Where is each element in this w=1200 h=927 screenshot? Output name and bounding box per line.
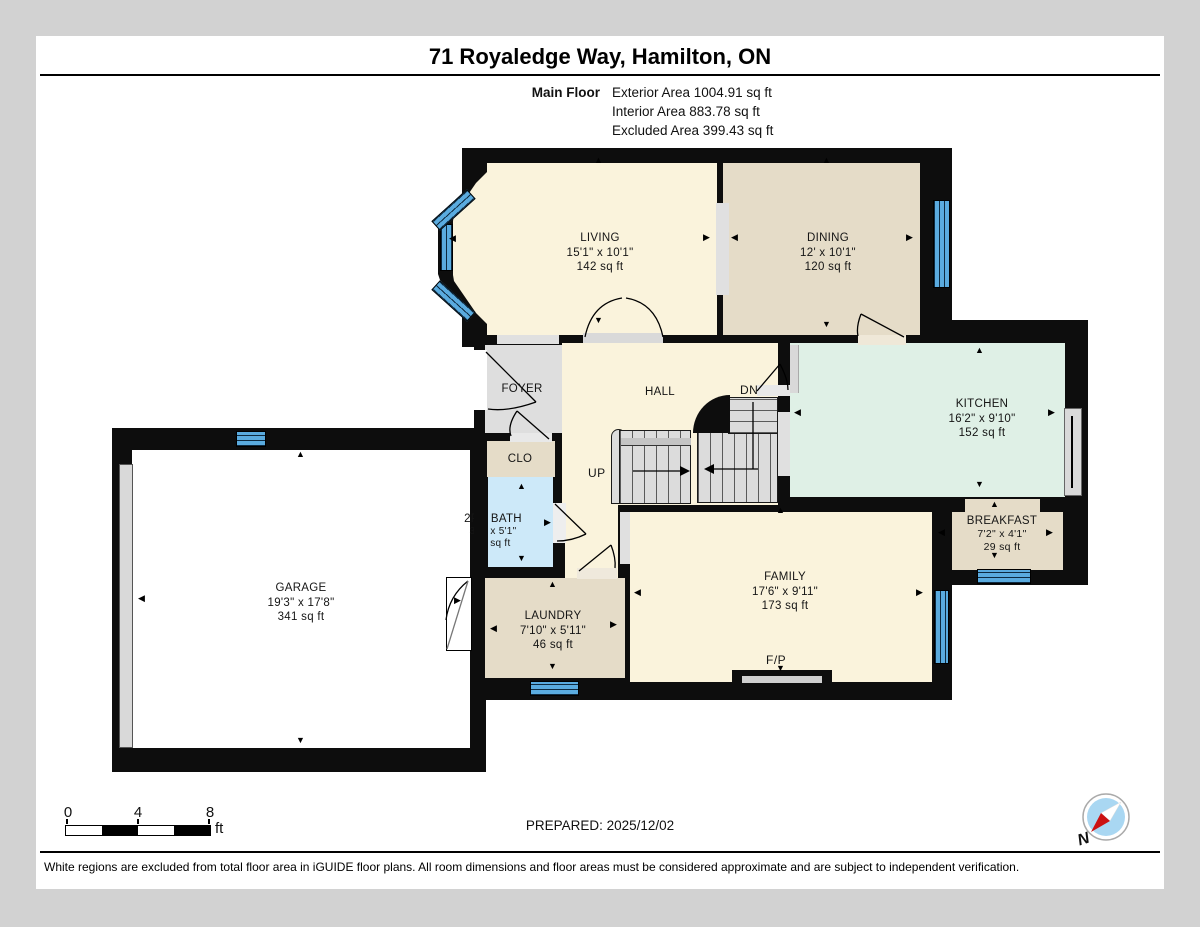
dimension-arrow: ◀ [794, 408, 801, 417]
dimension-arrow: ▶ [916, 588, 923, 597]
dimension-arrow: ▶ [544, 518, 551, 527]
label-kitchen: KITCHEN 16'2" x 9'10" 152 sq ft [902, 397, 1062, 441]
sill-living-doors [583, 333, 663, 343]
fireplace-insert [742, 676, 822, 683]
opening-foyer-living [497, 335, 559, 344]
scale-tickmark [66, 819, 68, 824]
dimension-arrow: ◀ [938, 528, 945, 537]
opening-hall-family [620, 512, 630, 564]
dimension-arrow: ▼ [990, 551, 999, 560]
gap-laundry-door [577, 568, 617, 579]
stair-handrail [621, 438, 691, 446]
garage-window [236, 431, 266, 447]
stairs-down-lower [697, 432, 778, 503]
label-closet: CLO [485, 452, 555, 467]
dimension-arrow: ▶ [610, 620, 617, 629]
label-dining: DINING 12' x 10'1" 120 sq ft [748, 231, 908, 275]
scale-tickmark [208, 819, 210, 824]
dimension-arrow: ▲ [776, 506, 785, 515]
dimension-arrow: ▼ [776, 664, 785, 673]
label-bath: 2PC BATH 3'6" x 5'1" 18 sq ft [447, 513, 539, 551]
label-laundry: LAUNDRY 7'10" x 5'11" 46 sq ft [480, 609, 626, 653]
wall [474, 477, 488, 567]
label-hall: HALL [610, 385, 710, 400]
stairs-down-upper [728, 397, 778, 434]
kitchen-counter [790, 345, 799, 393]
dimension-arrow: ▼ [548, 662, 557, 671]
dimension-arrow: ▲ [517, 482, 526, 491]
sliding-patio-door [1064, 408, 1082, 496]
scale-segment [66, 826, 102, 835]
dimension-arrow: ▶ [906, 233, 913, 242]
floorplan-canvas: 71 Royaledge Way, Hamilton, ON Main Floo… [0, 0, 1200, 927]
dimension-arrow: ▼ [296, 736, 305, 745]
scale-tick-8: 8 [200, 804, 220, 821]
floor-plan: LIVING 15'1" x 10'1" 142 sq ft DINING 12… [0, 0, 1200, 927]
label-foyer: FOYER [482, 382, 562, 397]
garage-entry-door-box [446, 577, 472, 651]
dimension-arrow: ▶ [1046, 528, 1053, 537]
label-living: LIVING 15'1" x 10'1" 142 sq ft [520, 231, 680, 275]
laundry-window [530, 681, 579, 696]
dimension-arrow: ◀ [490, 624, 497, 633]
dimension-arrow: ▶ [1048, 408, 1055, 417]
disclaimer-text: White regions are excluded from total fl… [44, 860, 1156, 874]
label-garage: GARAGE 19'3" x 17'8" 341 sq ft [221, 581, 381, 625]
gap-closet-door [510, 433, 552, 442]
dimension-arrow: ▼ [822, 320, 831, 329]
family-window [934, 590, 949, 664]
label-down: DN [740, 383, 758, 397]
dining-window [933, 200, 950, 288]
dimension-arrow: ▶ [454, 596, 461, 605]
dimension-arrow: ▲ [975, 346, 984, 355]
breakfast-window [977, 569, 1031, 584]
dimension-arrow: ▲ [822, 156, 831, 165]
dimension-arrow: ◀ [731, 233, 738, 242]
gap-bath-door [553, 503, 566, 543]
dimension-arrow: ◀ [449, 234, 456, 243]
gap-front-door [474, 350, 487, 410]
dimension-arrow: ◀ [138, 594, 145, 603]
dimension-arrow: ▲ [990, 500, 999, 509]
prepared-date: PREPARED: 2025/12/02 [420, 818, 780, 833]
scale-unit: ft [215, 820, 223, 837]
bay-window-center [440, 224, 453, 271]
sliding-door-line [1071, 416, 1073, 488]
scale-segment [102, 826, 138, 835]
opening-living-dining [716, 203, 729, 295]
dimension-arrow: ▼ [594, 316, 603, 325]
scale-tickmark [137, 819, 139, 824]
dimension-arrow: ▲ [296, 450, 305, 459]
dimension-arrow: ◀ [634, 588, 641, 597]
dimension-arrow: ▲ [548, 580, 557, 589]
scale-segment [174, 826, 210, 835]
gap-dining-door [858, 335, 906, 345]
label-up: UP [588, 466, 606, 480]
scale-tick-0: 0 [58, 804, 78, 821]
opening-hall-kitchen [778, 412, 790, 476]
footer-divider [40, 851, 1160, 853]
dimension-arrow: ▶ [703, 233, 710, 242]
gap-stairs-door [757, 385, 790, 396]
opening-kitchen-breakfast [965, 499, 1040, 512]
label-family: FAMILY 17'6" x 9'11" 173 sq ft [705, 570, 865, 614]
garage-overhead-door [119, 464, 133, 748]
dimension-arrow: ▼ [975, 480, 984, 489]
dimension-arrow: ▼ [517, 554, 526, 563]
scale-bar [65, 825, 211, 836]
dimension-arrow: ▲ [594, 156, 603, 165]
scale-segment [138, 826, 174, 835]
